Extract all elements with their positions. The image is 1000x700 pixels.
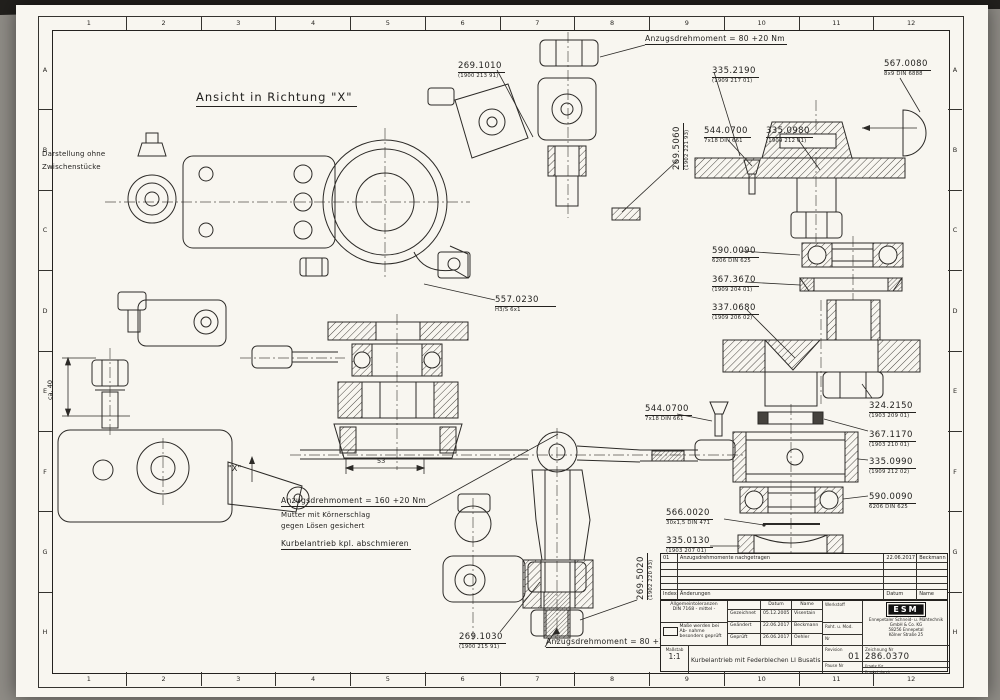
changed-name: Beckmann [792,622,823,634]
revision-header-date: Datum [884,590,917,600]
changed-label: Geändert [728,622,761,634]
col-name: Name [792,601,823,610]
esm-logo: ESM [886,602,925,617]
grease-note: Kurbelantrieb kpl. abschmieren [281,539,411,550]
secure-note-1: Mutter mit Körnerschlag [281,511,370,519]
dimension-ca40: ca. 40 [46,380,54,400]
check-box [663,627,678,636]
part-label-590-0090-upper: 590.0090 6206 DIN 625 [712,240,759,264]
checked-name: Oehler [792,634,823,646]
part-label-335-0990: 335.0990 (1909 212 02) [869,451,916,475]
part-label-269-1030: 269.1030 (1900 215 91) [459,626,506,650]
x-direction-marker: "X" [228,464,241,473]
part-label-590-0090-lower: 590.0090 6206 DIN 625 [869,486,916,510]
part-label-269-5020: 269.5020 (1902 220 93) [630,553,654,600]
part-label-337-0680: 337.0680 (1909 206 02) [712,297,759,321]
company-cell: ESM Ennepetaler Schneid- u. Mähtechnik G… [863,601,949,646]
drawing-title: Kurbelantrieb mit Federblechen LI Busati… [691,656,821,664]
part-label-566-0020: 566.0020 30x1,5 DIN 471 [666,502,713,526]
ersetzt-cell: Ersetzt durch [863,668,949,673]
material-cell: Werkstoff [823,601,863,623]
drawing-no-cell: Zeichnung Nr 286.0370 [863,646,949,662]
checked-label: Geprüft [728,634,761,646]
dimension-53: 53 [377,457,385,465]
revision-cell: Revision 01 [823,646,863,662]
part-label-367-1170: 367.1170 (1903 210 01) [869,424,916,448]
part-label-557-0230: 557.0230 H3/S 6x1 [495,289,556,313]
blank-cell: Roht. u. Mod. [823,623,863,635]
drawn-label: Gezeichnet [728,610,761,622]
revision-index: 01 [661,554,678,562]
part-label-269-1010: 269.1010 (1900 213 91) [458,55,505,79]
drawn-date: 05.12.2005 [761,610,792,622]
revision-name: Beckmann [917,554,947,562]
revision-date: 22.06.2017 [884,554,917,562]
part-label-567-0080: 567.0080 8x9 DIN 6888 [884,53,931,77]
note-darstellung-1: Darstellung ohne [42,150,105,158]
revision-header-name: Name [917,590,947,600]
part-label-544-0700-mid: 544.0700 7x18 DIN 661 [645,398,692,422]
title-block: Allgemeintoleranzen DIN 7168 - mittel - … [660,600,948,672]
changed-date: 22.06.2017 [761,622,792,634]
scale-cell: Maßstab 1:1 [661,646,689,673]
part-label-324-2150: 324.2150 (1903 209 01) [869,395,916,419]
revision-text: Anzugsdrehmomente nachgetragen [678,554,884,562]
check-note-cell: Maße werden bei Ab- nahme besonders gepr… [661,623,728,646]
torque-note-mid: Anzugsdrehmoment = 160 +20 Nm [281,496,428,507]
part-label-335-0980: 335.0980 (1909 212 01) [766,120,813,144]
drawn-name: Visentain [792,610,823,622]
part-label-269-5060: 269.5060 (1902 221 93) [666,123,690,170]
torque-note-top: Anzugsdrehmoment = 80 +20 Nm [645,34,787,45]
part-label-335-0130: 335.0130 (1903 207 01) [666,530,713,554]
drawing-number: 286.0370 [865,652,910,662]
revision-header-index: Index [661,590,678,600]
part-label-367-3670: 367.3670 (1909 204 01) [712,269,759,293]
part-label-544-0700-top: 544.0700 7x18 DIN 661 [704,120,751,144]
secure-note-2: gegen Lösen gesichert [281,522,365,530]
tolerance-cell: Allgemeintoleranzen DIN 7168 - mittel - [661,601,728,623]
drawing-title-cell: Kurbelantrieb mit Federblechen LI Busati… [689,646,823,673]
view-title: Ansicht in Richtung "X" [196,90,357,107]
checked-date: 26.06.2017 [761,634,792,646]
pause-cell: Pause Nr [823,662,863,673]
part-label-335-2190: 335.2190 (1909 217 01) [712,60,759,84]
nr-cell: Nr [823,635,863,646]
col-datum: Datum [761,601,792,610]
revision-table: 01 Anzugsdrehmomente nachgetragen 22.06.… [660,553,948,600]
revision-header-text: Änderungen [678,590,884,600]
note-darstellung-2: Zwischenstücke [42,163,101,171]
